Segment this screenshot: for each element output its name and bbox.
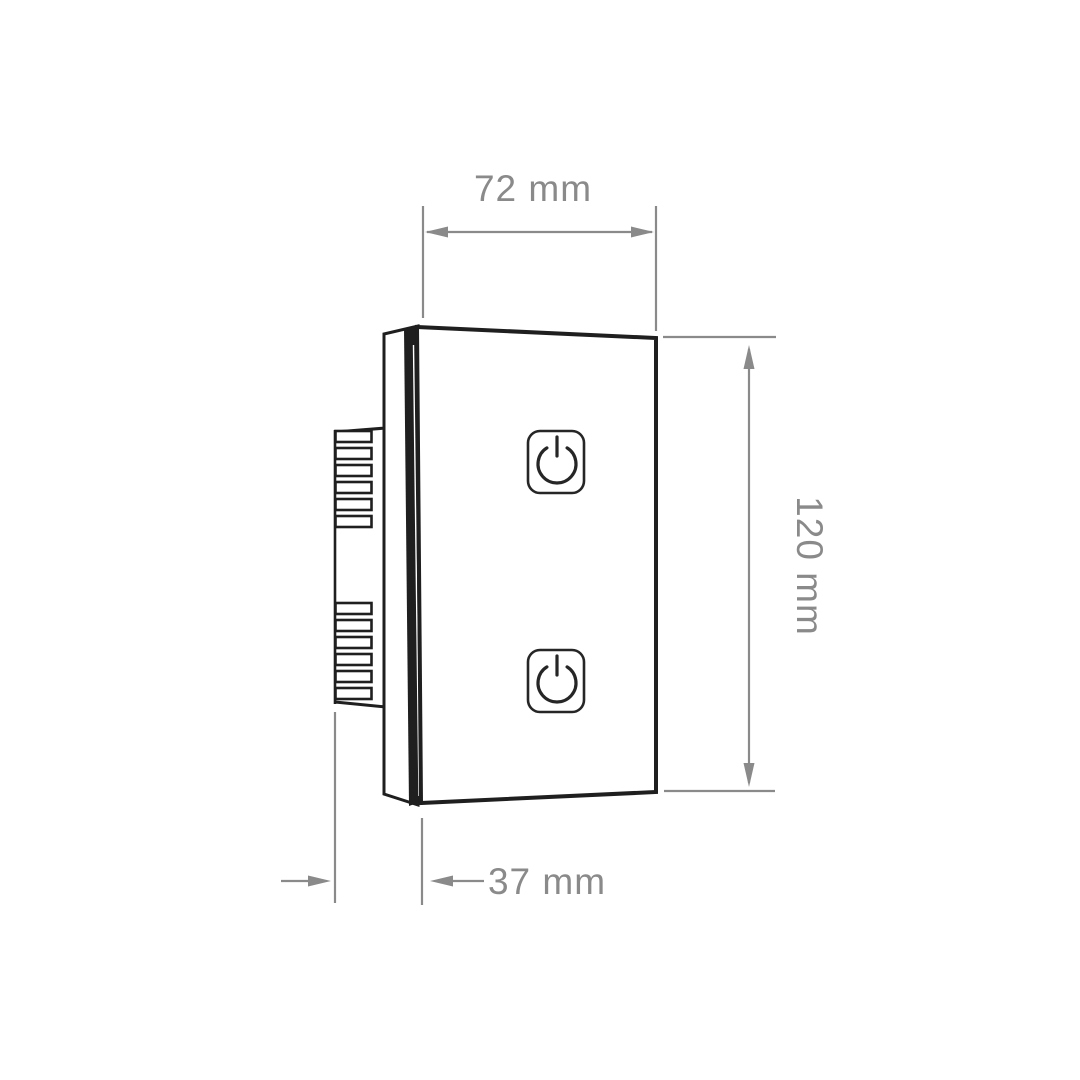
switch-front-panel	[417, 327, 656, 803]
width-dimension-label: 72 mm	[474, 168, 592, 209]
technical-drawing-canvas: 72 mm 120 mm 37 mm	[0, 0, 1080, 1080]
dimension-height: 120 mm	[663, 337, 830, 791]
dimension-width: 72 mm	[423, 168, 656, 331]
arrowhead-right-icon	[308, 876, 331, 887]
arrowhead-right-icon	[631, 227, 654, 238]
arrowhead-left-icon	[425, 227, 448, 238]
depth-dimension-label: 37 mm	[488, 861, 606, 902]
touch-button-top	[528, 431, 584, 493]
touch-button-bottom	[528, 650, 584, 712]
arrowhead-up-icon	[744, 345, 755, 369]
height-dimension-label: 120 mm	[789, 496, 830, 636]
arrowhead-down-icon	[744, 763, 755, 787]
arrowhead-left-icon	[430, 876, 453, 887]
terminal-fins-bottom	[336, 603, 372, 699]
switch-dimension-diagram: 72 mm 120 mm 37 mm	[0, 0, 1080, 1080]
switch-device	[335, 326, 656, 806]
terminal-fins-top	[336, 431, 372, 527]
